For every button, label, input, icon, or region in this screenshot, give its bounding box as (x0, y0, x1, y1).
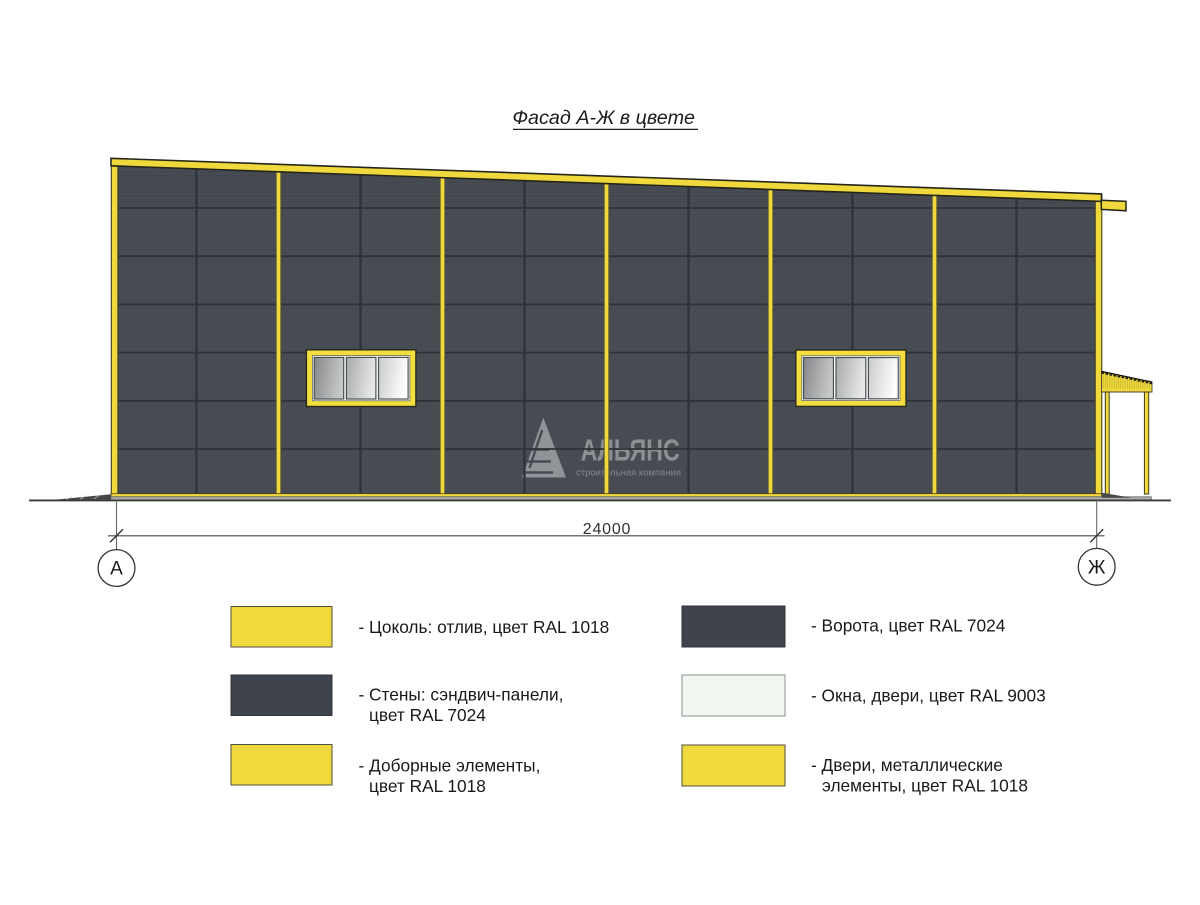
svg-text:строительная компания: строительная компания (576, 468, 681, 478)
svg-text:Фасад А-Ж в цвете: Фасад А-Ж в цвете (512, 107, 695, 129)
svg-text:- Ворота, цвет RAL 7024: - Ворота, цвет RAL 7024 (811, 616, 1006, 636)
svg-text:АЛЬЯНС: АЛЬЯНС (581, 434, 680, 468)
svg-text:- Цоколь: отлив, цвет RAL 1018: - Цоколь: отлив, цвет RAL 1018 (359, 617, 610, 637)
svg-text:- Окна, двери, цвет RAL 9003: - Окна, двери, цвет RAL 9003 (811, 685, 1046, 705)
svg-text:- Двери, металлические: - Двери, металлические (811, 755, 1003, 775)
svg-text:цвет RAL 1018: цвет RAL 1018 (369, 776, 486, 796)
svg-text:- Доборные элементы,: - Доборные элементы, (359, 756, 541, 776)
svg-text:цвет RAL 7024: цвет RAL 7024 (369, 705, 486, 725)
svg-text:24000: 24000 (583, 521, 632, 538)
svg-text:Ж: Ж (1088, 557, 1106, 578)
svg-text:элементы, цвет RAL 1018: элементы, цвет RAL 1018 (822, 776, 1028, 796)
svg-text:А: А (110, 559, 123, 580)
svg-text:- Стены: сэндвич-панели,: - Стены: сэндвич-панели, (359, 685, 564, 705)
